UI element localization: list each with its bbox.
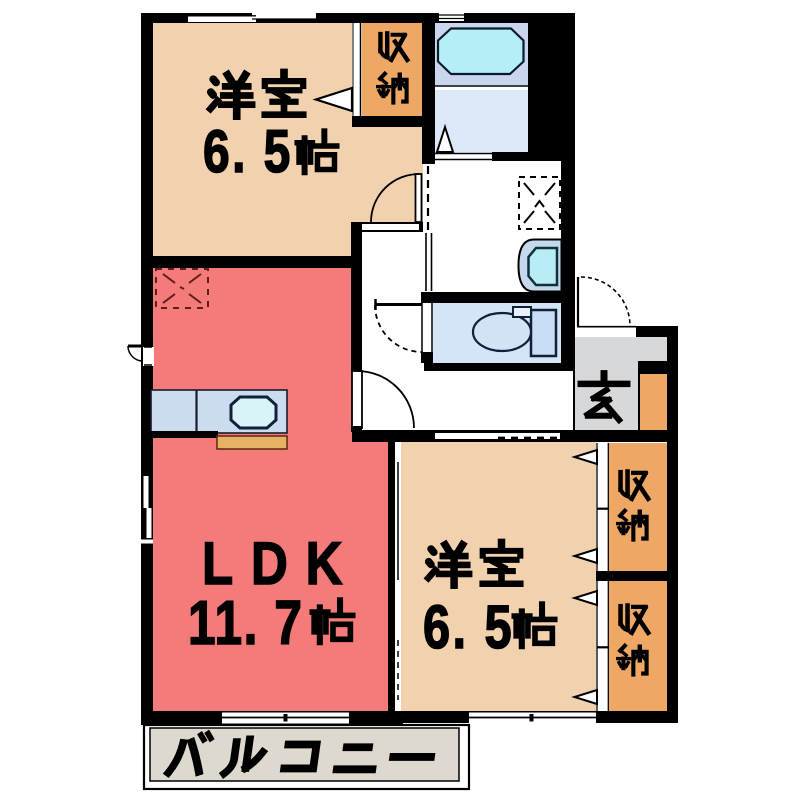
svg-text:6. 5: 6. 5	[203, 118, 293, 185]
svg-text:11. 7: 11. 7	[188, 588, 304, 658]
svg-text:6. 5: 6. 5	[423, 593, 514, 661]
